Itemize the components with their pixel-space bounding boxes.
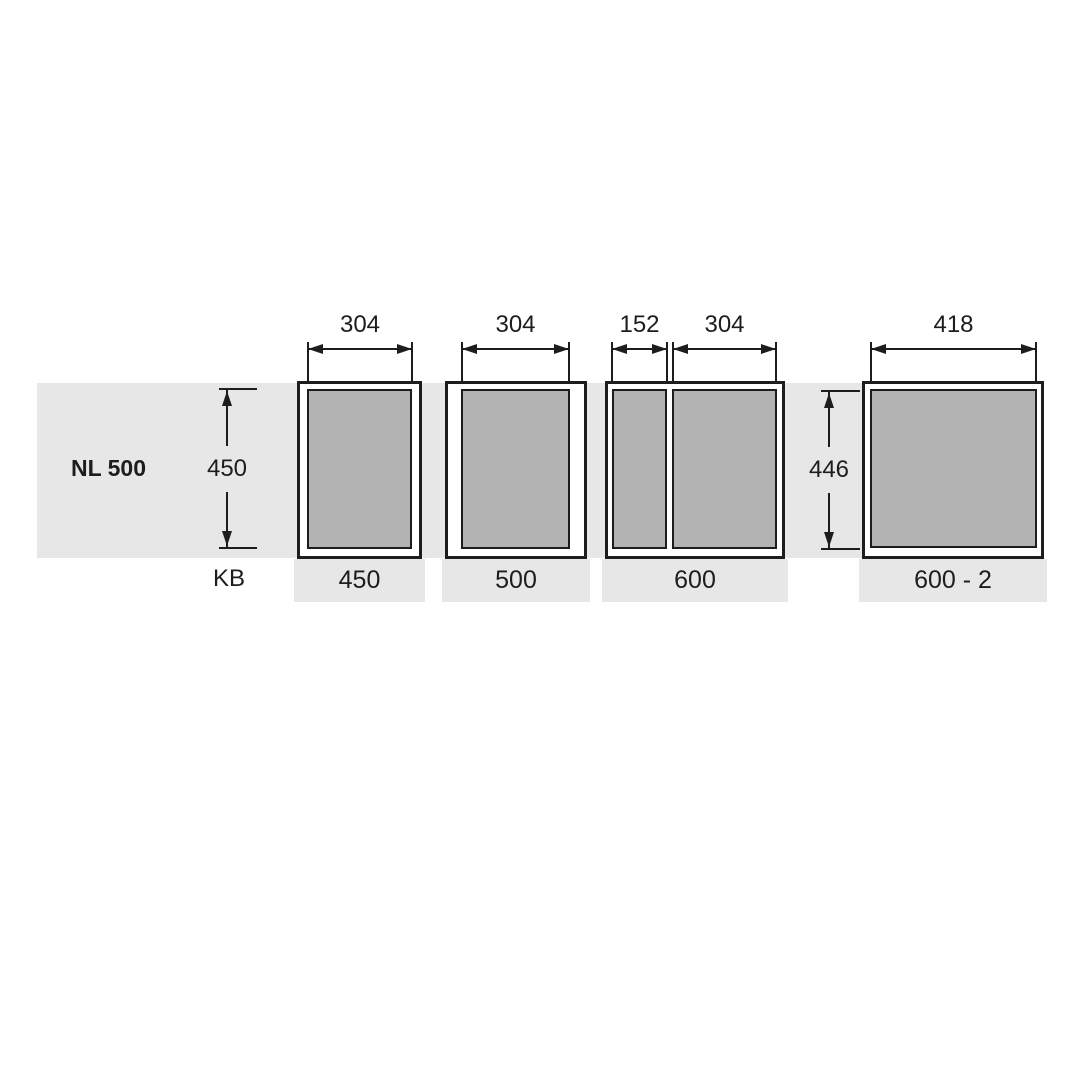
arrowhead-down-icon [824,532,834,547]
extension-line [1035,342,1037,382]
arrowhead-up-icon [824,393,834,408]
arrowhead-right-icon [761,344,776,354]
width-dim-4: 304 [673,312,776,384]
extension-line [411,342,413,382]
kb-size-band-600-2: 600 - 2 [859,559,1047,602]
cabinet-500-basket [461,389,570,549]
tick-line [219,547,257,549]
arrowhead-left-icon [612,344,627,354]
arrowhead-left-icon [871,344,886,354]
dim-label: 446 [806,447,852,493]
arrowhead-left-icon [673,344,688,354]
diagram-canvas: 304 304 152 304 418 [0,0,1080,1080]
dim-line [871,348,1036,350]
width-dim-1: 304 [308,312,412,384]
arrowhead-left-icon [462,344,477,354]
dim-label: 304 [704,312,744,338]
tick-line [821,548,860,550]
kb-size-label: 500 [495,566,537,594]
height-dim-left: 450 [219,388,259,549]
dim-label: 304 [495,312,535,338]
kb-size-label: 600 - 2 [914,566,992,594]
kb-size-label: 600 [674,566,716,594]
arrowhead-up-icon [222,391,232,406]
extension-line [307,342,309,382]
extension-line [775,342,777,382]
extension-line [461,342,463,382]
dim-line [462,348,569,350]
extension-line [611,342,613,382]
dim-label: 450 [204,446,250,492]
width-dim-2: 304 [462,312,569,384]
height-dim-right: 446 [821,390,861,550]
cabinet-600-basket-wide [672,389,777,549]
tick-line [219,388,257,390]
extension-line [870,342,872,382]
cabinet-450-basket [307,389,412,549]
kb-size-label: 450 [339,566,381,594]
width-dim-3: 152 [612,312,667,384]
kb-row-label: KB [204,566,254,592]
arrowhead-right-icon [652,344,667,354]
extension-line [672,342,674,382]
dim-label: 152 [619,312,659,338]
extension-line [666,342,668,382]
series-label: NL 500 [71,455,146,481]
extension-line [568,342,570,382]
arrowhead-right-icon [554,344,569,354]
arrowhead-right-icon [397,344,412,354]
arrowhead-left-icon [308,344,323,354]
dim-label: 304 [340,312,380,338]
width-dim-5: 418 [871,312,1036,384]
tick-line [821,390,860,392]
kb-size-band-600: 600 [602,559,788,602]
dim-label: 418 [933,312,973,338]
kb-size-band-500: 500 [442,559,590,602]
kb-size-band-450: 450 [294,559,425,602]
arrowhead-down-icon [222,531,232,546]
cabinet-600-basket-narrow [612,389,667,549]
cabinet-600-2-basket [870,389,1037,548]
arrowhead-right-icon [1021,344,1036,354]
